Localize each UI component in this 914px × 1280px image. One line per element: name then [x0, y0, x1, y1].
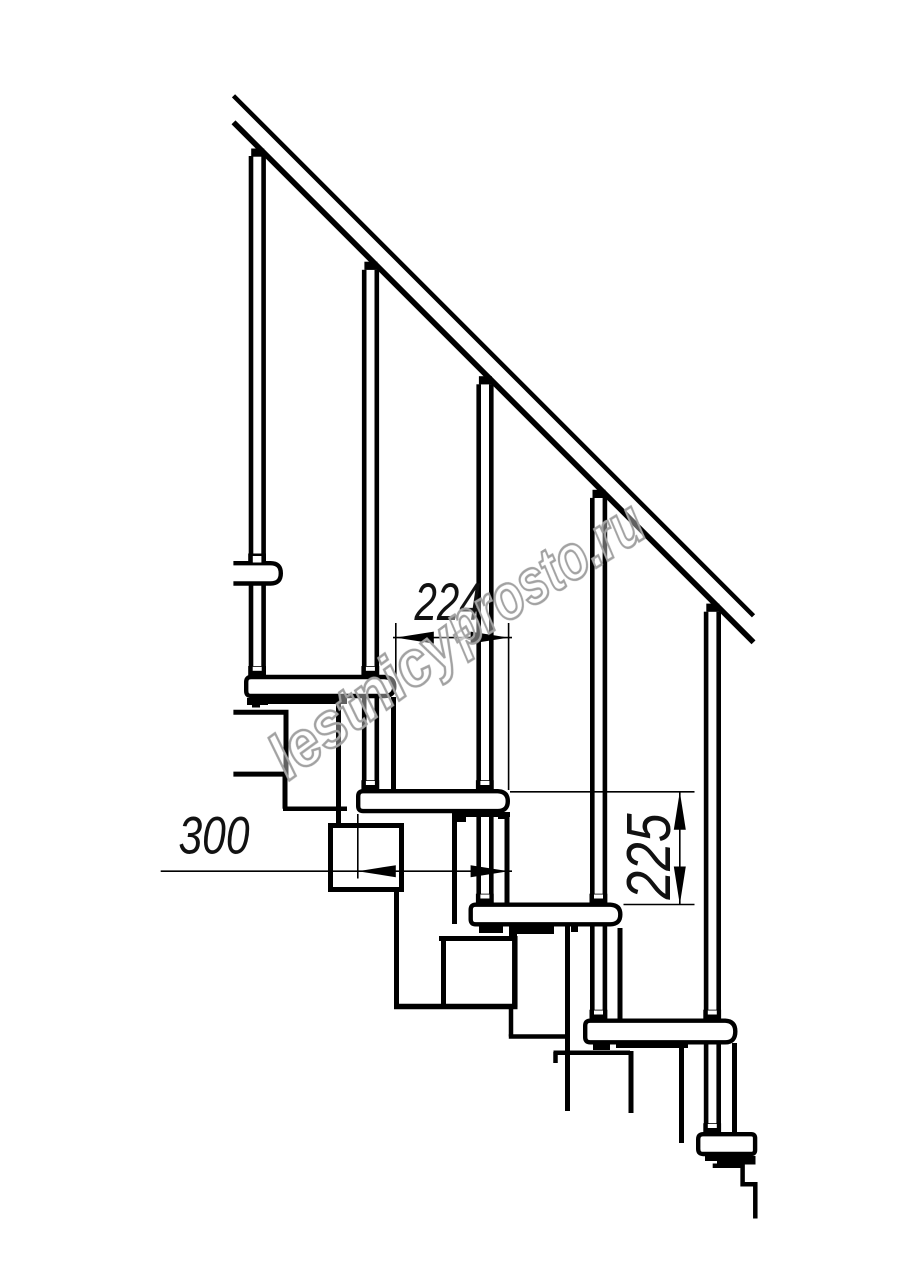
svg-text:225: 225: [615, 813, 684, 900]
svg-text:300: 300: [178, 807, 249, 866]
